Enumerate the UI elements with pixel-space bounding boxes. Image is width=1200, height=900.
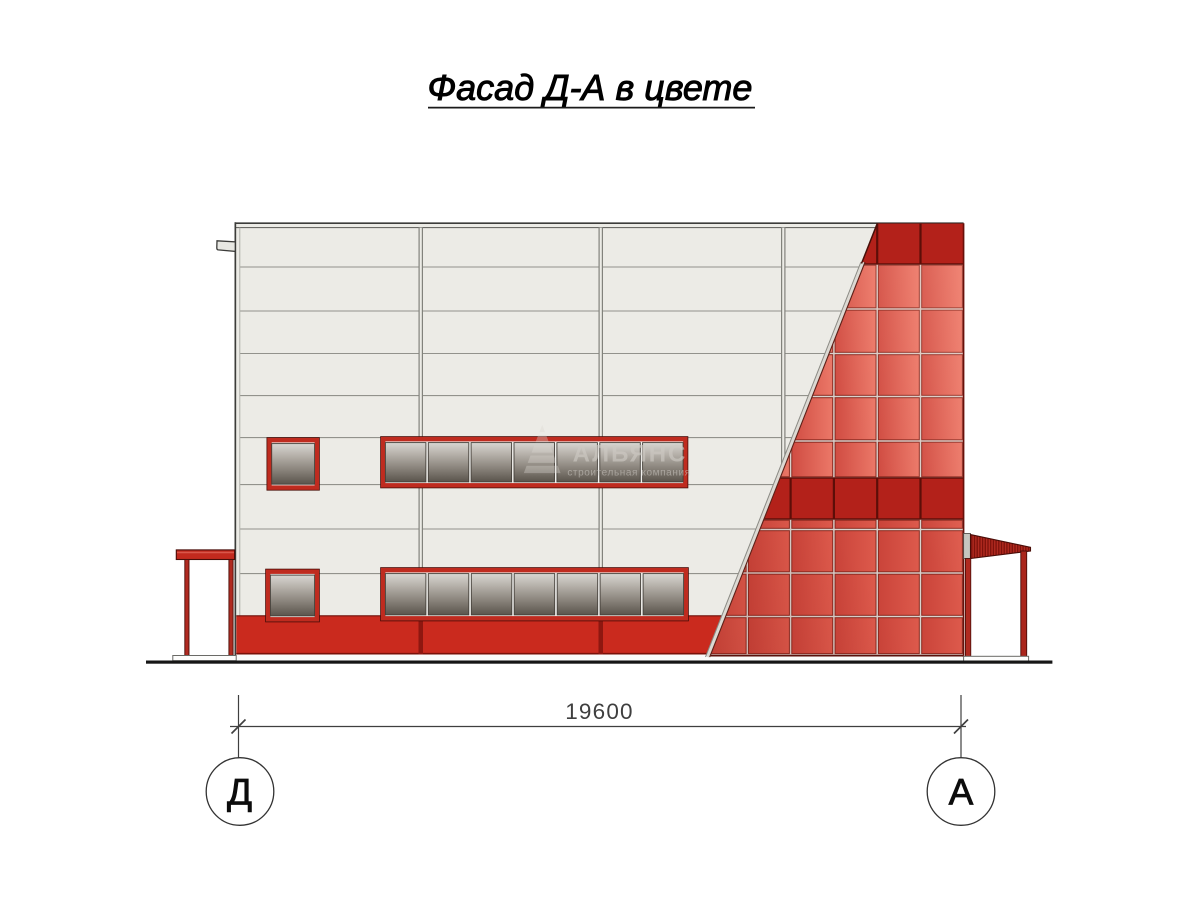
svg-text:строительная компания: строительная компания xyxy=(567,468,690,479)
svg-text:А: А xyxy=(949,772,974,813)
svg-text:АЛЬЯНС: АЛЬЯНС xyxy=(573,441,688,468)
svg-text:19600: 19600 xyxy=(565,699,634,724)
svg-text:Фасад Д-А в цвете: Фасад Д-А в цвете xyxy=(428,67,753,108)
svg-text:Д: Д xyxy=(227,772,252,813)
